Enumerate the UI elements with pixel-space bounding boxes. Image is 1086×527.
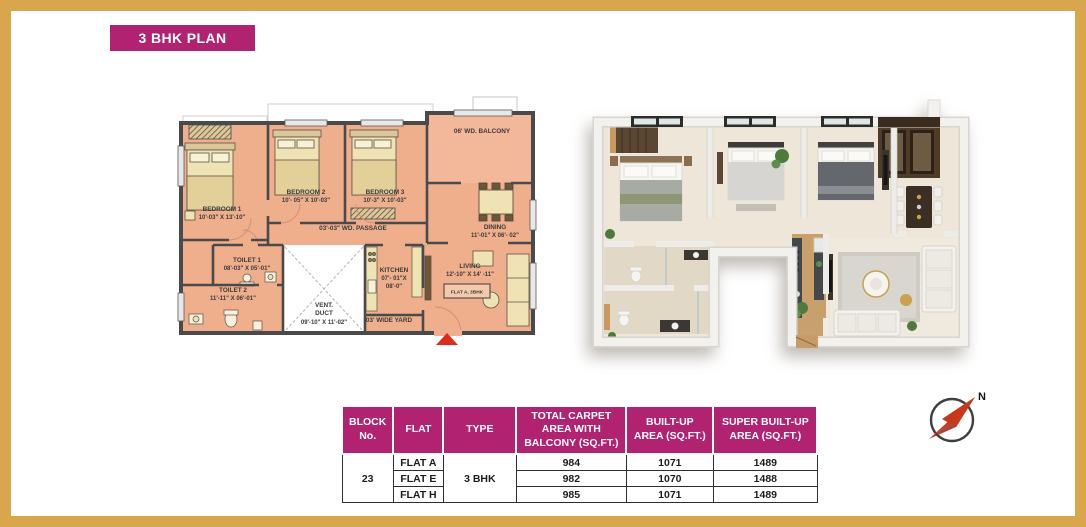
room-dims-dining: 11'-01" X 06'- 02" xyxy=(471,233,519,239)
cell-super: 1489 xyxy=(713,487,817,503)
dining-table-icon xyxy=(479,183,513,221)
floor-plan-2d: BEDROOM 1 10'-03" X 13'-10" BEDROOM 2 10… xyxy=(173,88,543,350)
page-title: 3 BHK PLAN xyxy=(110,25,255,51)
cell-flat: FLAT A xyxy=(393,454,443,471)
compass-icon: N xyxy=(918,383,994,455)
area-table: BLOCK No. FLAT TYPE TOTAL CARPET AREA WI… xyxy=(341,405,818,503)
room-dims-bedroom2: 10'- 05" X 10'-03" xyxy=(282,198,330,204)
room-label-balcony: 06' WD. BALCONY xyxy=(454,128,511,135)
brochure-page: 3 BHK PLAN xyxy=(0,0,1086,527)
room-dims-kitchen1: 07'- 01"X xyxy=(381,276,406,282)
col-header-type: TYPE xyxy=(443,406,516,454)
col-header-builtup: BUILT-UP AREA (SQ.FT.) xyxy=(626,406,713,454)
cell-builtup: 1071 xyxy=(626,487,713,503)
col-header-carpet: TOTAL CARPET AREA WITH BALCONY (SQ.FT.) xyxy=(516,406,626,454)
cell-carpet: 985 xyxy=(516,487,626,503)
cell-super: 1489 xyxy=(713,454,817,471)
room-label-living: LIVING xyxy=(459,263,480,270)
cell-flat: FLAT H xyxy=(393,487,443,503)
table-row: FLAT H 985 1071 1489 xyxy=(342,487,817,503)
flat-tag-label: FLAT A, 3BHK xyxy=(451,290,484,296)
table-row: FLAT E 982 1070 1488 xyxy=(342,471,817,487)
cell-flat: FLAT E xyxy=(393,471,443,487)
room-dims-living: 12'-10" X 14' -11" xyxy=(446,272,494,278)
wardrobe-hatch-bedroom1 xyxy=(189,125,231,139)
room-3d-dining xyxy=(896,186,942,228)
cell-builtup: 1071 xyxy=(626,454,713,471)
room-dims-toilet1: 08'-03" X 05'-01" xyxy=(224,266,271,272)
balcony-floor xyxy=(427,113,533,183)
room-dims-kitchen2: 08'-0" xyxy=(386,284,402,290)
floor-plan-3d xyxy=(576,94,990,362)
room-label-toilet1: TOILET 1 xyxy=(233,257,261,264)
room-dims-toilet2: 11'-11" X 06'-01" xyxy=(210,296,256,302)
table-header-row: BLOCK No. FLAT TYPE TOTAL CARPET AREA WI… xyxy=(342,406,817,454)
cell-builtup: 1070 xyxy=(626,471,713,487)
col-header-block: BLOCK No. xyxy=(342,406,393,454)
room-label-vent2: DUCT xyxy=(315,310,333,317)
room-dims-bedroom1: 10'-03" X 13'-10" xyxy=(199,215,246,221)
wardrobe-hatch-passage xyxy=(351,208,395,219)
room-label-bedroom2: BEDROOM 2 xyxy=(287,189,326,196)
room-label-bedroom1: BEDROOM 1 xyxy=(203,206,242,213)
room-label-kitchen: KITCHEN xyxy=(380,267,409,274)
col-header-super: SUPER BUILT-UP AREA (SQ.FT.) xyxy=(713,406,817,454)
bed-icon-bedroom3 xyxy=(350,130,398,195)
cell-carpet: 984 xyxy=(516,454,626,471)
room-label-vent1: VENT. xyxy=(315,302,333,309)
table-row: 23 FLAT A 3 BHK 984 1071 1489 xyxy=(342,454,817,471)
cell-block-no: 23 xyxy=(342,454,393,503)
col-header-flat: FLAT xyxy=(393,406,443,454)
room-label-yard: 03' WIDE YARD xyxy=(366,317,413,324)
room-label-dining: DINING xyxy=(484,224,506,231)
bed-icon-bedroom2 xyxy=(273,130,321,195)
room-dims-vent: 09'-10" X 11'-02" xyxy=(301,320,347,326)
compass-north-label: N xyxy=(978,391,986,403)
cell-carpet: 982 xyxy=(516,471,626,487)
room-label-passage: 03'-03" WD. PASSAGE xyxy=(319,225,387,232)
room-label-bedroom3: BEDROOM 3 xyxy=(366,189,405,196)
room-dims-bedroom3: 10'-3" X 10'-03" xyxy=(363,198,406,204)
room-label-toilet2: TOILET 2 xyxy=(219,287,247,294)
cell-type: 3 BHK xyxy=(443,454,516,503)
cell-super: 1488 xyxy=(713,471,817,487)
